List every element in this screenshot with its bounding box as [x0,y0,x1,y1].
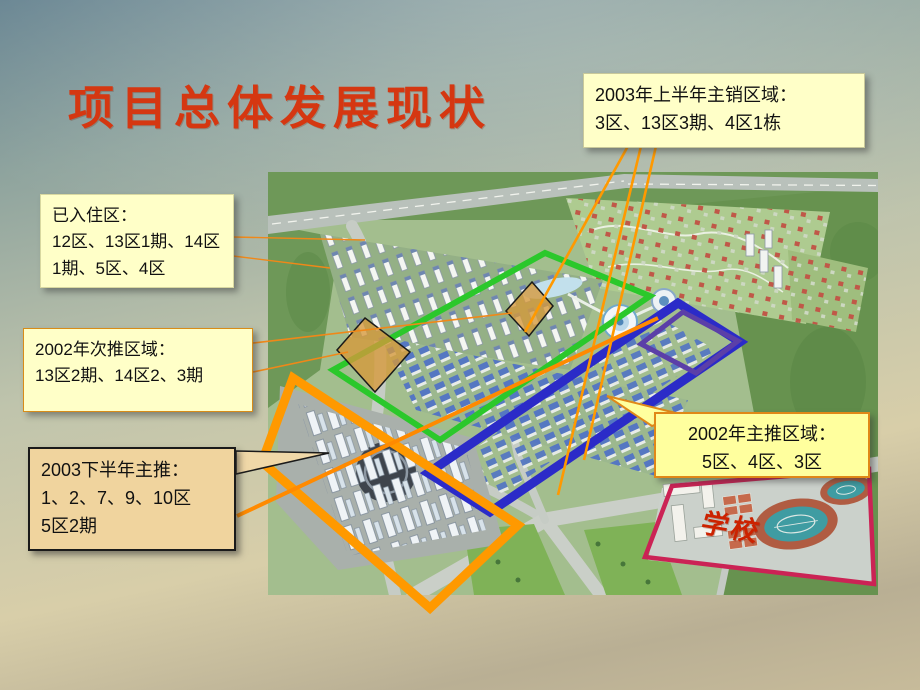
callout-occupied: 已入住区： 12区、13区1期、14区1期、5区、4区 [40,194,234,288]
callout-sales-2003-h1: 2003年上半年主销区域： 3区、13区3期、4区1栋 [583,73,865,148]
callout-occupied-title: 已入住区： [52,203,222,229]
callout-push-2002-body: 5区、4区、3区 [667,449,857,477]
callout-push-h2-line1: 1、2、7、9、10区 [41,485,223,513]
callout-sales-title: 2003年上半年主销区域： [595,82,853,110]
callout-push-h2-line2: 5区2期 [41,513,223,541]
callout-secondary-title: 2002年次推区域： [35,337,241,363]
callout-push-2002-title: 2002年主推区域： [667,421,857,449]
callout-secondary-2002: 2002年次推区域： 13区2期、14区2、3期 [23,328,253,412]
callout-push-2002: 2002年主推区域： 5区、4区、3区 [654,412,870,478]
presentation-slide: 项目总体发展现状 [0,0,920,690]
callout-sales-body: 3区、13区3期、4区1栋 [595,110,853,138]
callout-secondary-body: 13区2期、14区2、3期 [35,363,241,389]
callout-push-h2-title: 2003下半年主推： [41,457,223,485]
callout-push-2003-h2: 2003下半年主推： 1、2、7、9、10区 5区2期 [28,447,236,551]
callout-occupied-body: 12区、13区1期、14区1期、5区、4区 [52,229,222,282]
